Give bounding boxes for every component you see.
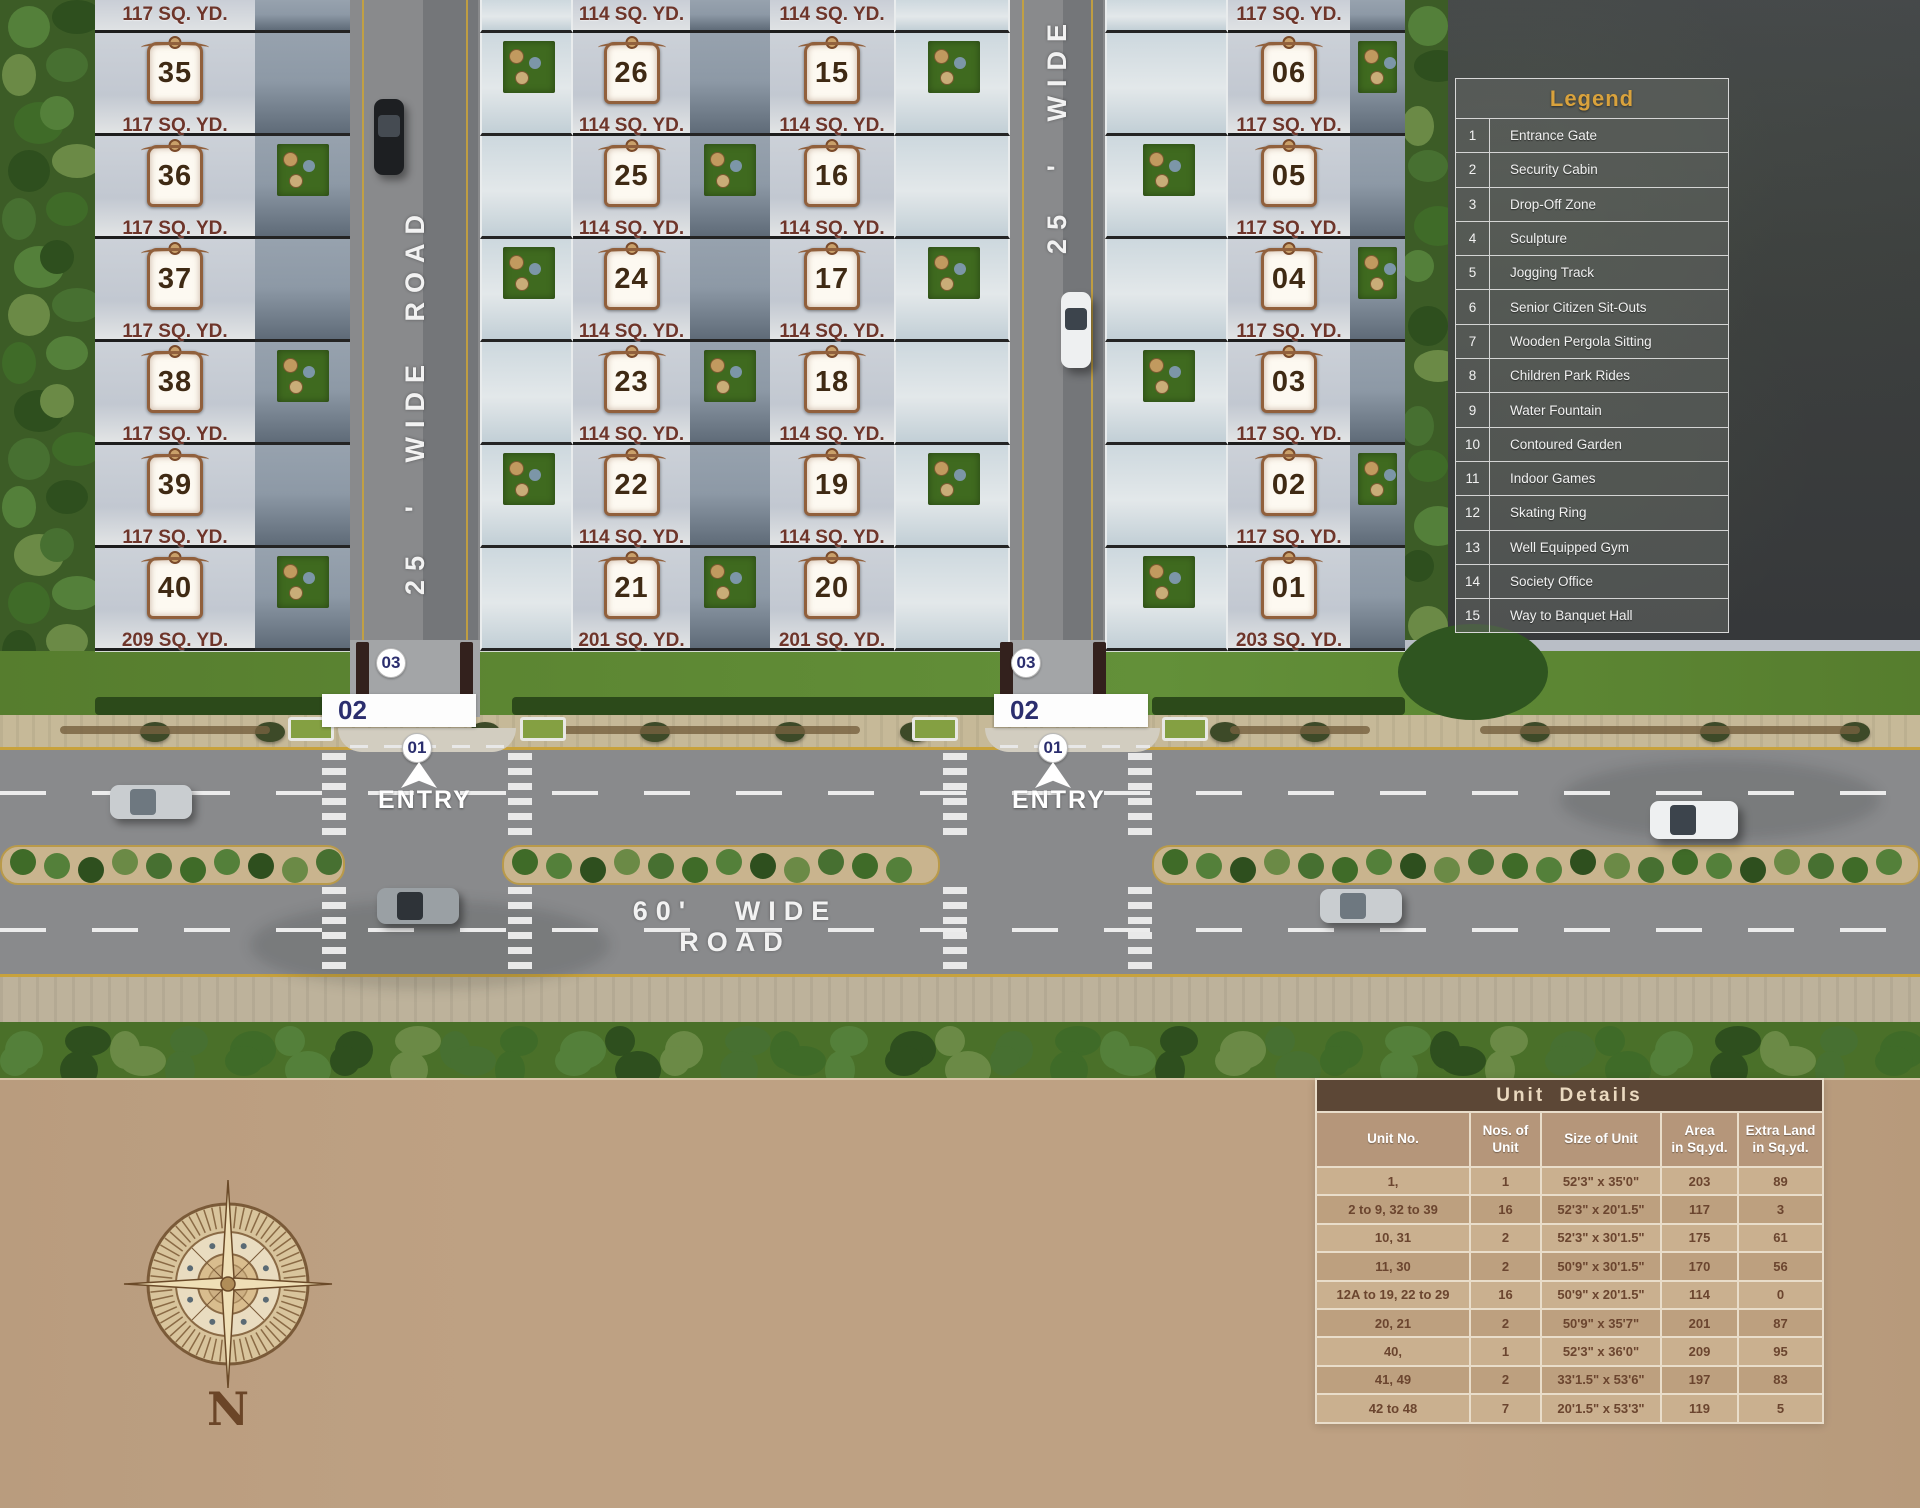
tree-blob: [0, 1046, 30, 1076]
unit-details-cell: 20, 21: [1317, 1308, 1471, 1336]
legend-item-label: Drop-Off Zone: [1490, 188, 1728, 221]
median-tree: [1638, 857, 1664, 883]
garden-furniture: [1384, 57, 1396, 69]
unit-cell: 23114 SQ. YD.: [573, 342, 690, 445]
unit-cell: 35117 SQ. YD.: [95, 33, 255, 136]
tree-blob: [1215, 1046, 1253, 1076]
sidewalk-bottom: [0, 977, 1920, 1022]
unit-details-cell: 114: [1662, 1280, 1739, 1308]
strip-cell: [480, 136, 573, 239]
unit-plaque: 21: [604, 557, 660, 619]
median-tree: [1604, 853, 1630, 879]
garden-furniture: [1370, 277, 1384, 291]
dropoff-zone-marker: 03: [1011, 648, 1041, 678]
tree-blob: [2, 54, 36, 96]
legend-item-number: 1: [1456, 119, 1490, 152]
garden-patio-strip: [480, 0, 573, 651]
unit-area-label: 114 SQ. YD.: [573, 321, 690, 343]
site-plan-canvas: 25 ' WIDE ROAD 25 ' WIDE 60' WIDE ROAD 1…: [0, 0, 1920, 1508]
unit-details-cell: 50'9" x 35'7": [1542, 1308, 1662, 1336]
garden-furniture: [289, 174, 303, 188]
tree-blob: [2, 198, 36, 240]
garden-plot: [928, 453, 980, 505]
unit-number: 22: [614, 469, 648, 502]
road-median: [502, 845, 940, 885]
crosswalk: [322, 887, 346, 973]
unit-area-label: 114 SQ. YD.: [770, 527, 894, 549]
tree-blob: [885, 1046, 923, 1076]
garden-plot: [704, 556, 756, 608]
planter-box: [912, 717, 958, 741]
unit-details-cell: 1: [1471, 1166, 1542, 1194]
legend-item-label: Wooden Pergola Sitting: [1490, 325, 1728, 358]
garden-furniture: [710, 152, 725, 167]
legend-row: 6Senior Citizen Sit-Outs: [1456, 289, 1728, 323]
strip-cell: [1350, 342, 1405, 445]
car-windshield: [378, 115, 400, 137]
median-tree: [1230, 857, 1256, 883]
strip-cell: [1350, 33, 1405, 136]
legend-row: 8Children Park Rides: [1456, 358, 1728, 392]
legend-item-number: 5: [1456, 256, 1490, 289]
unit-cell-partial: 114 SQ. YD.: [573, 0, 690, 33]
unit-area-label: 114 SQ. YD.: [770, 115, 894, 137]
unit-plaque: 04: [1261, 248, 1317, 310]
unit-details-header-cell: Size of Unit: [1542, 1111, 1662, 1166]
unit-cell: 25114 SQ. YD.: [573, 136, 690, 239]
unit-cell: 19114 SQ. YD.: [770, 445, 894, 548]
tree-blob: [2, 342, 36, 384]
unit-cell-partial: 117 SQ. YD.: [1228, 0, 1350, 33]
garden-plot: [1358, 247, 1397, 299]
trees-left: [0, 0, 95, 715]
median-tree: [1502, 853, 1528, 879]
garden-furniture: [283, 152, 298, 167]
legend-item-number: 4: [1456, 222, 1490, 255]
unit-plaque: 19: [804, 454, 860, 516]
unit-details-row: 10, 31252'3" x 30'1.5"17561: [1317, 1223, 1822, 1251]
legend-item-label: Sculpture: [1490, 222, 1728, 255]
median-tree: [1706, 853, 1732, 879]
unit-details-cell: 87: [1739, 1308, 1822, 1336]
garden-furniture: [1364, 49, 1379, 64]
crosswalk: [1128, 753, 1152, 839]
median-tree: [1264, 849, 1290, 875]
unit-plaque: 05: [1261, 145, 1317, 207]
entry-label: ENTRY: [1012, 786, 1106, 815]
unit-area-label: 114 SQ. YD.: [573, 115, 690, 137]
entrance-gate-marker: 01: [402, 733, 432, 763]
unit-details-panel: Unit Details Unit No.Nos. of UnitSize of…: [1315, 1078, 1824, 1424]
legend-item-label: Senior Citizen Sit-Outs: [1490, 290, 1728, 323]
unit-details-cell: 61: [1739, 1223, 1822, 1251]
unit-plaque: 20: [804, 557, 860, 619]
unit-cell: 37117 SQ. YD.: [95, 239, 255, 342]
unit-details-header-cell: Unit No.: [1317, 1111, 1471, 1166]
unit-details-header-cell: Area in Sq.yd.: [1662, 1111, 1739, 1166]
garden-plot: [503, 453, 555, 505]
legend-item-number: 6: [1456, 290, 1490, 323]
tree-blob: [8, 150, 50, 192]
unit-number: 39: [158, 469, 192, 502]
garden-furniture: [289, 380, 303, 394]
unit-plaque: 17: [804, 248, 860, 310]
median-tree: [146, 853, 172, 879]
median-tree: [1434, 857, 1460, 883]
unit-number: 04: [1272, 263, 1306, 296]
unit-area-label: 117 SQ. YD.: [95, 321, 255, 343]
tree-blob: [1414, 50, 1450, 82]
tree-blob: [52, 432, 95, 466]
tree-blob: [330, 1046, 360, 1076]
garden-furniture: [716, 380, 730, 394]
legend-row: 9Water Fountain: [1456, 392, 1728, 426]
unit-number: 23: [614, 366, 648, 399]
tree-blob: [1110, 1046, 1156, 1076]
unit-plaque: 39: [147, 454, 203, 516]
unit-area-label: 114 SQ. YD.: [770, 4, 894, 26]
road-label-left: 25 ' WIDE ROAD: [350, 195, 480, 605]
green-belt: [0, 1022, 1920, 1078]
unit-details-cell: 16: [1471, 1280, 1542, 1308]
backyard-strip: [690, 0, 770, 651]
unit-plaque: 25: [604, 145, 660, 207]
garden-patio-strip: [1105, 0, 1228, 651]
unit-details-cell: 52'3" x 30'1.5": [1542, 1223, 1662, 1251]
median-tree: [1366, 849, 1392, 875]
garden-furniture: [529, 57, 541, 69]
median-tree: [1332, 857, 1358, 883]
dropoff-zone-marker: 03: [376, 648, 406, 678]
garden-furniture: [1384, 469, 1396, 481]
garden-furniture: [1155, 586, 1169, 600]
garden-furniture: [303, 160, 315, 172]
road-median: [0, 845, 345, 885]
unit-area-label: 201 SQ. YD.: [770, 630, 894, 652]
unit-details-row: 40,152'3" x 36'0"20995: [1317, 1336, 1822, 1364]
entry-label: ENTRY: [378, 786, 472, 815]
tree-blob: [660, 1046, 690, 1076]
strip-cell: [1105, 33, 1228, 136]
unit-details-row: 42 to 48720'1.5" x 53'3"1195: [1317, 1393, 1822, 1421]
unit-number: 20: [815, 572, 849, 605]
unit-number: 36: [158, 160, 192, 193]
median-tree: [1400, 853, 1426, 879]
tree-blob: [1414, 206, 1450, 246]
legend-item-label: Well Equipped Gym: [1490, 531, 1728, 564]
crosswalk: [943, 887, 967, 973]
garden-furniture: [509, 49, 524, 64]
unit-area-label: 114 SQ. YD.: [770, 424, 894, 446]
tree-blob: [40, 384, 74, 418]
unit-number: 16: [815, 160, 849, 193]
unit-details-cell: 20'1.5" x 53'3": [1542, 1393, 1662, 1421]
strip-cell: [1350, 548, 1405, 651]
tree-blob: [1402, 106, 1434, 146]
unit-plaque: 02: [1261, 454, 1317, 516]
tree-blob: [450, 1046, 496, 1076]
unit-details-cell: 7: [1471, 1393, 1542, 1421]
tree-blob: [8, 438, 50, 480]
backyard-strip: [255, 0, 350, 651]
unit-plaque: 26: [604, 42, 660, 104]
unit-details-cell: 52'3" x 20'1.5": [1542, 1194, 1662, 1222]
tree-blob: [1408, 6, 1448, 46]
strip-cell: [690, 136, 770, 239]
car-windshield: [1670, 805, 1696, 835]
strip-cell: [1105, 239, 1228, 342]
unit-details-header-cell: Extra Land in Sq.yd.: [1739, 1111, 1822, 1166]
unit-number: 05: [1272, 160, 1306, 193]
unit-details-cell: 16: [1471, 1194, 1542, 1222]
driveway-apron: [985, 728, 1160, 752]
unit-details-cell: 175: [1662, 1223, 1739, 1251]
strip-cell: [894, 33, 1010, 136]
unit-cell-partial: 117 SQ. YD.: [95, 0, 255, 33]
gate-pillar: [1000, 642, 1013, 698]
road-median: [1152, 845, 1920, 885]
unit-number: 02: [1272, 469, 1306, 502]
unit-cell: 17114 SQ. YD.: [770, 239, 894, 342]
unit-details-cell: 0: [1739, 1280, 1822, 1308]
legend-row: 3Drop-Off Zone: [1456, 187, 1728, 221]
legend-row: 10Contoured Garden: [1456, 427, 1728, 461]
garden-furniture: [1169, 366, 1181, 378]
garden-plot: [1143, 556, 1195, 608]
unit-plaque: 03: [1261, 351, 1317, 413]
car: [110, 785, 192, 819]
gate-pillar: [1093, 642, 1106, 698]
hedge: [512, 697, 997, 715]
unit-details-cell: 41, 49: [1317, 1365, 1471, 1393]
tree-blob: [46, 336, 88, 370]
garden-furniture: [1370, 71, 1384, 85]
planter-strip: [1230, 726, 1370, 734]
unit-number: 21: [614, 572, 648, 605]
median-tree: [1196, 853, 1222, 879]
unit-area-label: 203 SQ. YD.: [1228, 630, 1350, 652]
garden-furniture: [509, 255, 524, 270]
unit-details-cell: 2: [1471, 1223, 1542, 1251]
unit-cell: 06117 SQ. YD.: [1228, 33, 1350, 136]
car: [1650, 801, 1738, 839]
unit-cell: 18114 SQ. YD.: [770, 342, 894, 445]
unit-number: 06: [1272, 57, 1306, 90]
garden-plot: [704, 350, 756, 402]
compass-rose: [122, 1178, 334, 1390]
garden-furniture: [954, 469, 966, 481]
legend-item-label: Children Park Rides: [1490, 359, 1728, 392]
unit-column-units-35-40: 117 SQ. YD.35117 SQ. YD.36117 SQ. YD.371…: [95, 0, 255, 651]
garden-furniture: [1149, 152, 1164, 167]
unit-cell: 26114 SQ. YD.: [573, 33, 690, 136]
garden-furniture: [934, 49, 949, 64]
median-tree: [716, 849, 742, 875]
garden-furniture: [1384, 263, 1396, 275]
median-tree: [78, 857, 104, 883]
unit-number: 17: [815, 263, 849, 296]
garden-furniture: [303, 366, 315, 378]
unit-details-cell: 209: [1662, 1336, 1739, 1364]
tree-blob: [615, 1051, 661, 1078]
garden-furniture: [940, 277, 954, 291]
unit-details-cell: 1: [1471, 1336, 1542, 1364]
garden-furniture: [954, 57, 966, 69]
tree-blob: [1402, 550, 1434, 582]
unit-number: 26: [614, 57, 648, 90]
planter-box: [1162, 717, 1208, 741]
car-windshield: [1340, 893, 1366, 919]
crosswalk: [508, 753, 532, 839]
unit-details-cell: 40,: [1317, 1336, 1471, 1364]
tree-blob: [1770, 1046, 1816, 1076]
planter-strip: [1480, 726, 1860, 734]
garden-furniture: [283, 358, 298, 373]
strip-cell: [690, 0, 770, 33]
garden-furniture: [954, 263, 966, 275]
garden-furniture: [940, 71, 954, 85]
legend-row: 12Skating Ring: [1456, 495, 1728, 529]
median-tree: [1740, 857, 1766, 883]
tree-blob: [225, 1046, 263, 1076]
unit-details-cell: 50'9" x 30'1.5": [1542, 1251, 1662, 1279]
garden-plot: [704, 144, 756, 196]
unit-details-cell: 2: [1471, 1251, 1542, 1279]
unit-number: 37: [158, 263, 192, 296]
unit-details-row: 12A to 19, 22 to 291650'9" x 20'1.5"1140: [1317, 1280, 1822, 1308]
garden-plot: [1358, 41, 1397, 93]
unit-cell: 02117 SQ. YD.: [1228, 445, 1350, 548]
strip-cell: [480, 0, 573, 33]
strip-cell: [255, 239, 350, 342]
unit-details-cell: 11, 30: [1317, 1251, 1471, 1279]
unit-details-cell: 33'1.5" x 53'6": [1542, 1365, 1662, 1393]
strip-cell: [894, 445, 1010, 548]
unit-cell: 22114 SQ. YD.: [573, 445, 690, 548]
legend-row: 5Jogging Track: [1456, 255, 1728, 289]
unit-column-units-06-01: 117 SQ. YD.06117 SQ. YD.05117 SQ. YD.041…: [1228, 0, 1350, 651]
legend-item-label: Society Office: [1490, 565, 1728, 598]
tree-blob: [1408, 450, 1448, 482]
tree-blob: [1605, 1051, 1651, 1078]
median-tree: [1876, 849, 1902, 875]
legend-item-label: Way to Banquet Hall: [1490, 599, 1728, 632]
strip-cell: [255, 548, 350, 651]
garden-furniture: [940, 483, 954, 497]
median-tree: [886, 857, 912, 883]
road-label-right: 25 ' WIDE: [1010, 2, 1105, 266]
large-tree: [1398, 624, 1548, 720]
legend-item-number: 10: [1456, 428, 1490, 461]
unit-number: 19: [815, 469, 849, 502]
median-tree: [784, 857, 810, 883]
garden-furniture: [730, 572, 742, 584]
strip-cell: [255, 445, 350, 548]
median-tree: [1162, 849, 1188, 875]
unit-cell: 24114 SQ. YD.: [573, 239, 690, 342]
legend-title: Legend: [1456, 79, 1728, 118]
unit-plaque: 35: [147, 42, 203, 104]
garden-furniture: [716, 586, 730, 600]
legend-item-number: 14: [1456, 565, 1490, 598]
unit-area-label: 117 SQ. YD.: [95, 4, 255, 26]
unit-area-label: 117 SQ. YD.: [1228, 218, 1350, 240]
tree-blob: [52, 0, 95, 34]
unit-area-label: 114 SQ. YD.: [573, 4, 690, 26]
gate-pillar: [460, 642, 473, 698]
legend-item-label: Jogging Track: [1490, 256, 1728, 289]
median-tree: [580, 857, 606, 883]
strip-cell: [255, 342, 350, 445]
unit-area-label: 117 SQ. YD.: [1228, 115, 1350, 137]
garden-furniture: [1149, 564, 1164, 579]
median-tree: [44, 853, 70, 879]
tree-blob: [1275, 1051, 1321, 1078]
garden-plot: [1143, 350, 1195, 402]
median-tree: [1808, 853, 1834, 879]
median-tree: [316, 849, 342, 875]
tree-blob: [8, 582, 50, 624]
strip-cell: [480, 548, 573, 651]
tree-blob: [8, 6, 50, 48]
unit-details-header-row: Unit No.Nos. of UnitSize of UnitArea in …: [1317, 1111, 1822, 1166]
tree-blob: [1414, 350, 1450, 382]
unit-cell: 15114 SQ. YD.: [770, 33, 894, 136]
unit-details-cell: 201: [1662, 1308, 1739, 1336]
car-windshield: [397, 892, 423, 920]
unit-cell: 40209 SQ. YD.: [95, 548, 255, 651]
unit-number: 18: [815, 366, 849, 399]
unit-cell-partial: 114 SQ. YD.: [770, 0, 894, 33]
unit-area-label: 117 SQ. YD.: [95, 115, 255, 137]
unit-area-label: 114 SQ. YD.: [770, 218, 894, 240]
legend-item-number: 9: [1456, 393, 1490, 426]
legend-item-number: 12: [1456, 496, 1490, 529]
median-tree: [852, 853, 878, 879]
trees-right: [1400, 0, 1450, 640]
garden-furniture: [934, 255, 949, 270]
unit-cell: 05117 SQ. YD.: [1228, 136, 1350, 239]
unit-plaque: 22: [604, 454, 660, 516]
unit-area-label: 117 SQ. YD.: [1228, 527, 1350, 549]
crosswalk: [322, 753, 346, 839]
crosswalk: [943, 753, 967, 839]
strip-cell: [1350, 0, 1405, 33]
tree-blob: [52, 144, 95, 178]
unit-details-cell: 2: [1471, 1365, 1542, 1393]
tree-blob: [40, 528, 74, 562]
unit-details-cell: 1,: [1317, 1166, 1471, 1194]
garden-furniture: [730, 160, 742, 172]
garden-furniture: [1149, 358, 1164, 373]
hedge: [95, 697, 345, 715]
entrance-gate-marker: 01: [1038, 733, 1068, 763]
garden-furniture: [1169, 160, 1181, 172]
unit-details-cell: 10, 31: [1317, 1223, 1471, 1251]
unit-details-cell: 2 to 9, 32 to 39: [1317, 1194, 1471, 1222]
legend-row: 11Indoor Games: [1456, 461, 1728, 495]
unit-column-units-26-21: 114 SQ. YD.26114 SQ. YD.25114 SQ. YD.241…: [573, 0, 690, 651]
compass-north-label: N: [122, 1382, 334, 1436]
unit-area-label: 117 SQ. YD.: [1228, 321, 1350, 343]
unit-area-label: 201 SQ. YD.: [573, 630, 690, 652]
legend-item-label: Contoured Garden: [1490, 428, 1728, 461]
median-tree: [546, 853, 572, 879]
median-tree: [180, 857, 206, 883]
median-tree: [750, 853, 776, 879]
planter-strip: [60, 726, 270, 734]
legend-row: 4Sculpture: [1456, 221, 1728, 255]
